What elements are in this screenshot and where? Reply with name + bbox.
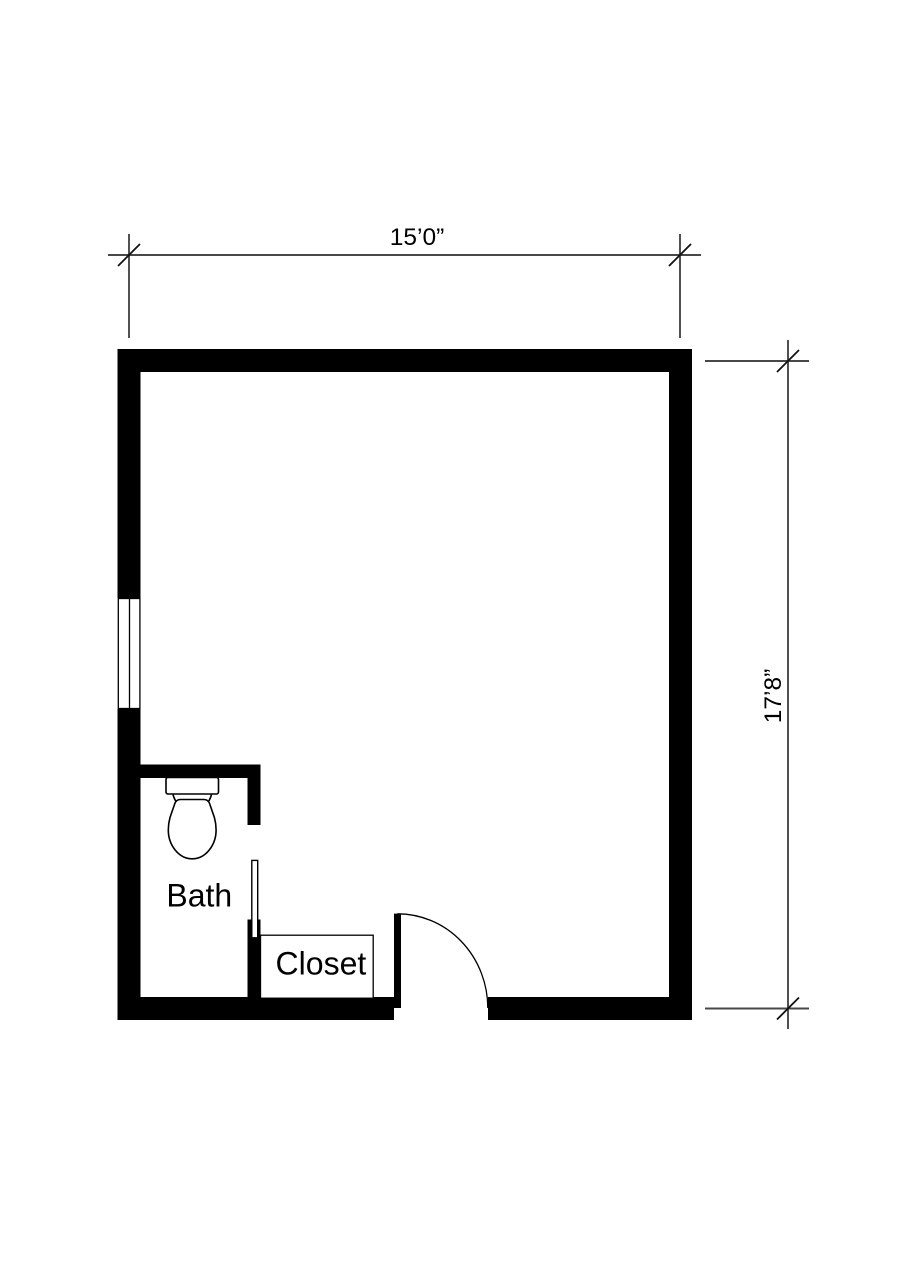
svg-text:15’0”: 15’0” (390, 224, 444, 251)
svg-text:Closet: Closet (276, 946, 367, 982)
svg-text:17’8”: 17’8” (760, 669, 787, 723)
svg-text:Bath: Bath (166, 877, 232, 913)
